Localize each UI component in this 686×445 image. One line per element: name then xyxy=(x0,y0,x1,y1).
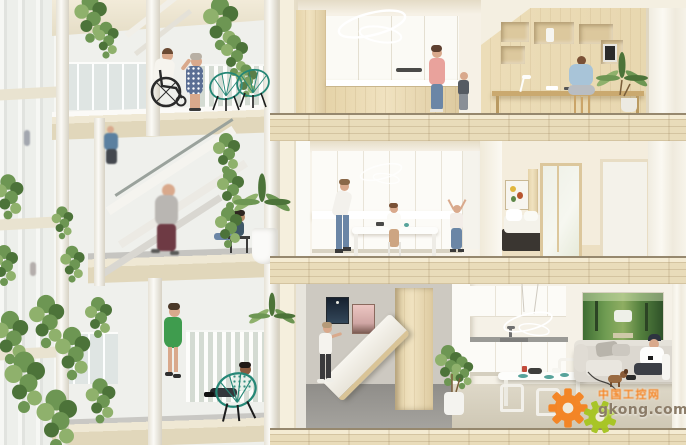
ring-pendant-light xyxy=(359,160,403,185)
ivy-cluster xyxy=(52,206,74,239)
watermark: 中国工控网 gkong.com xyxy=(598,386,686,418)
ivy-column-cluster xyxy=(213,133,240,174)
architectural-rendering: 中国工控网 gkong.com xyxy=(0,0,686,445)
acapulco-chair xyxy=(211,367,263,423)
ivy-bush xyxy=(86,378,116,423)
palm-plant xyxy=(248,293,297,326)
ivy-column-cluster xyxy=(215,207,242,248)
ivy-bush xyxy=(85,297,112,338)
watermark-gear-orange xyxy=(548,388,587,427)
ring-pendant-light xyxy=(336,5,407,45)
pendant-cord xyxy=(522,284,538,314)
ivy-bush xyxy=(37,390,78,445)
ivy-cluster xyxy=(0,245,18,286)
ivy-cluster xyxy=(0,174,23,219)
wheelchair-icon xyxy=(152,70,186,106)
watermark-site-name: 中国工控网 xyxy=(598,386,686,402)
decor-overlay xyxy=(0,0,686,445)
ficus-pot xyxy=(444,392,464,415)
ivy-cluster xyxy=(60,246,84,283)
plant-stem xyxy=(620,80,630,96)
watermark-url: gkong.com xyxy=(598,402,686,418)
ring-pendant-light xyxy=(502,308,553,337)
